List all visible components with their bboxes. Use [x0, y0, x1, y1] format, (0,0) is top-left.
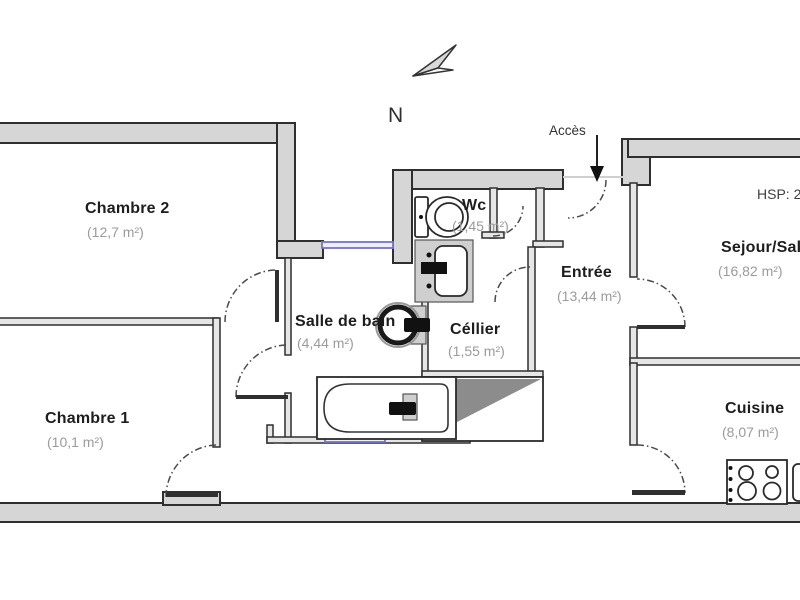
stove-knob [729, 466, 733, 470]
door-swing-arc [637, 279, 685, 327]
wall-segment [0, 318, 218, 325]
door-leaf [275, 270, 279, 322]
wall-segment [536, 188, 544, 247]
water-heater-knob [427, 284, 432, 289]
bathtub-inner [324, 384, 448, 432]
wall-segment [277, 123, 295, 247]
room-area-cellier: (1,55 m²) [448, 343, 505, 359]
stove-burner [766, 466, 778, 478]
door-swing-arc [236, 345, 288, 397]
water-heater-icon [415, 240, 473, 302]
room-area-chambre1: (10,1 m²) [47, 434, 104, 450]
stove-knob [729, 477, 733, 481]
wall-segment [0, 123, 294, 143]
wall-segment [285, 258, 291, 355]
access-arrow-head [590, 166, 604, 182]
room-area-entree: (13,44 m²) [557, 288, 622, 304]
wall-segment [213, 318, 220, 447]
access-label: Accès [549, 123, 586, 138]
door-leaf [236, 395, 288, 399]
access-arrow-icon [590, 135, 604, 182]
door-swing-arc [637, 445, 685, 493]
entry-threshold [563, 176, 623, 178]
wall-segment [277, 241, 323, 258]
room-name-chambre2: Chambre 2 [85, 200, 170, 218]
stove-icon [727, 460, 800, 504]
wall-segment [285, 393, 291, 443]
window [322, 242, 393, 248]
door-swing-arc [166, 445, 218, 497]
toilet-button [419, 215, 423, 219]
stove-burner [764, 483, 781, 500]
door-swing-arc [568, 180, 606, 218]
wall-segment [630, 363, 637, 445]
wall-segment [0, 503, 800, 522]
bathtub-icon [317, 377, 456, 439]
door-leaf [166, 493, 218, 497]
room-name-wc: Wc [462, 197, 486, 215]
water-heater-knob [427, 253, 432, 258]
room-name-cellier: Céllier [450, 321, 500, 339]
wall-segment [393, 170, 412, 263]
ceiling-height-label: HSP: 2, [757, 186, 800, 202]
stove-burner [738, 482, 756, 500]
north-arrow-icon [413, 45, 456, 76]
floor-plan-drawing [0, 0, 800, 600]
north-label: N [388, 104, 403, 128]
wall-segment [630, 358, 800, 365]
water-heater-handle [421, 262, 447, 274]
kitchen-sink [793, 464, 800, 501]
stove-knob [729, 488, 733, 492]
wall-segment [630, 183, 637, 277]
room-area-chambre2: (12,7 m²) [87, 224, 144, 240]
room-name-entree: Entrée [561, 264, 612, 282]
room-name-salle-de-bain: Salle de bain [295, 313, 395, 331]
floor-plan: N Accès HSP: 2, Chambre 2 (12,7 m²) Wc (… [0, 0, 800, 600]
room-area-wc: (1,45 m²) [452, 218, 509, 234]
stove-knob [729, 498, 733, 502]
room-name-cuisine: Cuisine [725, 400, 784, 418]
room-area-salle-de-bain: (4,44 m²) [297, 335, 354, 351]
room-name-sejour: Sejour/Salle [721, 239, 800, 257]
door-swing-arc [225, 270, 277, 322]
stove-burner [739, 466, 753, 480]
wall-segment [628, 139, 800, 157]
room-area-sejour: (16,82 m²) [718, 263, 783, 279]
door-leaf [632, 490, 685, 495]
washbasin-faucet [404, 318, 430, 332]
room-area-cuisine: (8,07 m²) [722, 424, 779, 440]
wall-segment [533, 241, 563, 247]
bathtub-faucet [389, 402, 416, 415]
wall-segment [393, 170, 563, 189]
door-leaf [637, 325, 685, 329]
door-swing-arc [495, 267, 530, 302]
room-name-chambre1: Chambre 1 [45, 410, 130, 428]
